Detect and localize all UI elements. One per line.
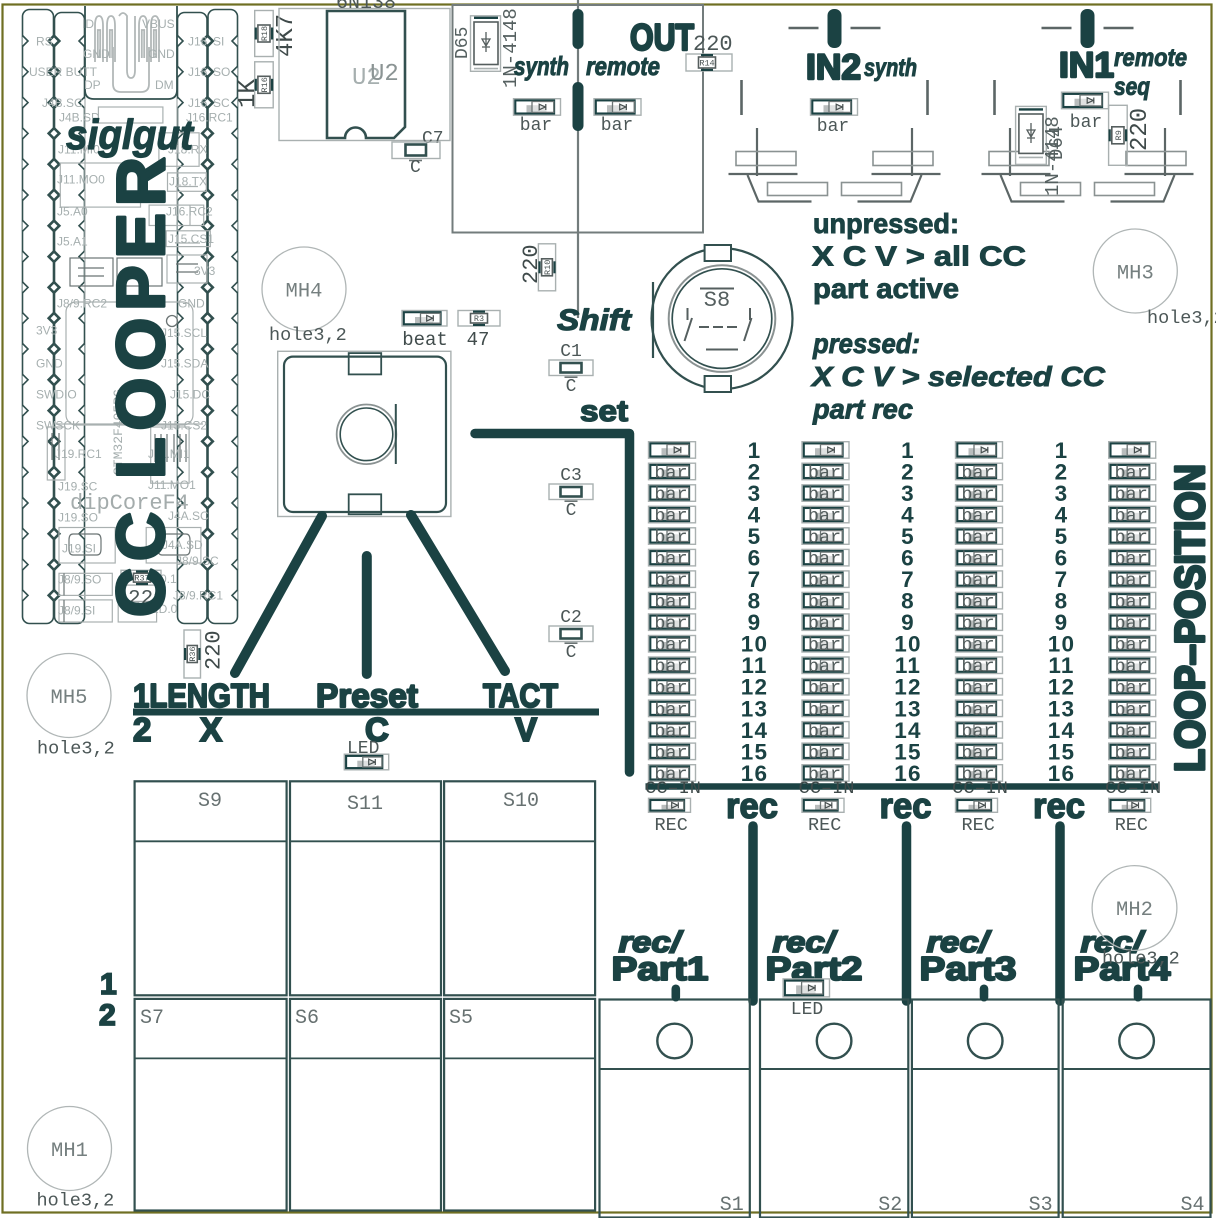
svg-text:unpressed:: unpressed: [813,208,959,239]
svg-text:X C V > all CC: X C V > all CC [812,241,1026,272]
svg-text:X C V > selected CC: X C V > selected CC [810,361,1106,392]
svg-text:2: 2 [99,999,116,1032]
svg-text:REC: REC [655,815,688,836]
svg-text:SC: SC [213,96,230,110]
svg-text:bar: bar [654,592,687,613]
svg-text:bar: bar [654,485,687,506]
svg-text:SWDIO: SWDIO [36,388,77,402]
svg-text:bar: bar [1115,592,1148,613]
svg-text:hole3,2: hole3,2 [37,1191,115,1212]
svg-text:bar: bar [1115,463,1148,484]
svg-text:C: C [566,377,577,397]
svg-text:J8/9.SI: J8/9.SI [58,604,95,618]
svg-text:R36: R36 [188,646,198,661]
svg-text:bar: bar [961,700,994,721]
svg-text:bar: bar [654,614,687,635]
svg-text:bar: bar [808,571,841,592]
svg-text:J19.SI: J19.SI [62,542,96,556]
svg-text:S10: S10 [503,790,539,813]
svg-text:IN1: IN1 [1059,46,1114,85]
svg-text:Preset: Preset [316,677,418,714]
svg-text:3V3: 3V3 [36,324,58,338]
svg-text:bar: bar [961,549,994,570]
svg-text:GND: GND [178,297,205,311]
svg-text:bar: bar [654,506,687,527]
svg-text:J16.RC1: J16.RC1 [186,111,233,125]
svg-text:MH3: MH3 [1117,263,1154,286]
svg-text:S7: S7 [140,1007,164,1030]
svg-text:J16: J16 [188,96,208,110]
svg-text:bar: bar [961,635,994,656]
svg-text:Part1: Part1 [612,950,709,987]
svg-text:R9: R9 [1114,130,1124,140]
svg-text:2: 2 [133,711,151,748]
svg-text:1LENGTH: 1LENGTH [133,677,270,714]
svg-text:J19.RC1: J19.RC1 [55,447,102,461]
svg-text:bar: bar [1115,485,1148,506]
svg-text:bar: bar [808,721,841,742]
svg-text:bar: bar [1115,743,1148,764]
svg-text:bar: bar [654,528,687,549]
svg-text:bar: bar [1115,614,1148,635]
svg-text:bar: bar [808,528,841,549]
svg-text:D65: D65 [453,27,473,59]
svg-text:bar: bar [961,678,994,699]
svg-text:bar: bar [601,116,633,136]
svg-text:bar: bar [961,485,994,506]
svg-text:bar: bar [817,117,849,137]
svg-text:CC–IN: CC–IN [1105,779,1161,799]
svg-text:beat: beat [402,329,448,351]
svg-text:R3: R3 [474,314,484,324]
svg-text:DP: DP [84,78,101,92]
svg-text:LOOP–POSITION: LOOP–POSITION [1166,464,1213,772]
svg-text:3V3: 3V3 [194,264,216,278]
svg-text:TACT: TACT [483,677,558,714]
svg-text:bar: bar [808,635,841,656]
svg-text:bar: bar [654,700,687,721]
svg-text:R14: R14 [699,59,714,69]
svg-text:S9: S9 [198,790,222,813]
svg-text:hole3,2: hole3,2 [1102,949,1180,970]
svg-text:CC–IN: CC–IN [799,779,855,799]
svg-text:seq: seq [1114,73,1150,101]
svg-text:rec: rec [726,785,778,826]
svg-text:siglgut: siglgut [66,111,195,158]
svg-text:hole3,2: hole3,2 [1147,308,1216,329]
svg-text:bar: bar [1115,571,1148,592]
svg-text:J4B.SC: J4B.SC [42,96,83,110]
svg-text:bar: bar [808,614,841,635]
svg-text:bar: bar [654,678,687,699]
svg-text:bar: bar [654,743,687,764]
svg-text:RS: RS [36,35,53,49]
svg-text:bar: bar [808,592,841,613]
svg-text:J8/9.SO: J8/9.SO [58,573,101,587]
svg-text:SO: SO [213,65,230,79]
svg-text:S8: S8 [704,288,730,313]
svg-text:S2: S2 [878,1194,902,1217]
svg-text:J11.MO0: J11.MO0 [57,173,105,187]
svg-text:S6: S6 [295,1007,319,1030]
svg-text:remote: remote [586,51,660,81]
svg-text:synth: synth [864,54,917,82]
svg-text:bar: bar [654,657,687,678]
svg-text:J8/9.RC1: J8/9.RC1 [173,589,223,603]
svg-text:rec: rec [880,785,932,826]
svg-text:CC–IN: CC–IN [645,779,701,799]
svg-text:R10: R10 [543,260,553,275]
svg-text:bar: bar [1115,700,1148,721]
svg-text:J8/9.SC: J8/9.SC [176,554,219,568]
svg-text:J5.A1: J5.A1 [57,235,88,249]
svg-text:bar: bar [1115,678,1148,699]
svg-text:47: 47 [467,329,490,351]
svg-text:IN2: IN2 [806,48,861,87]
svg-text:J8/9.RC2: J8/9.RC2 [57,297,107,311]
svg-text:GND: GND [36,357,63,371]
svg-text:bar: bar [1115,635,1148,656]
svg-text:REC: REC [962,815,995,836]
svg-text:bar: bar [1115,549,1148,570]
svg-text:SI: SI [213,35,224,49]
svg-text:bar: bar [808,506,841,527]
svg-text:set: set [580,395,628,428]
svg-text:bar: bar [1070,113,1102,133]
svg-text:bar: bar [520,116,552,136]
svg-text:DM: DM [155,78,174,92]
svg-text:1: 1 [100,968,117,1001]
svg-text:VBUS: VBUS [142,17,175,31]
svg-text:bar: bar [961,571,994,592]
svg-text:220: 220 [202,630,227,670]
svg-text:CC–IN: CC–IN [952,779,1008,799]
svg-text:Shift: Shift [557,304,633,337]
svg-text:CC LOOPER: CC LOOPER [103,157,179,617]
svg-text:REC: REC [808,815,841,836]
svg-text:bar: bar [961,528,994,549]
svg-text:part active: part active [813,273,959,304]
svg-text:ID: ID [82,17,94,31]
svg-text:bar: bar [961,657,994,678]
svg-text:synth: synth [514,51,569,81]
svg-text:MH1: MH1 [51,1140,88,1163]
svg-text:MH2: MH2 [1116,899,1153,922]
svg-text:bar: bar [808,743,841,764]
svg-text:bar: bar [654,463,687,484]
svg-text:bar: bar [1115,657,1148,678]
svg-text:J5.A0: J5.A0 [57,205,88,219]
svg-text:bar: bar [808,700,841,721]
svg-text:C3: C3 [560,466,582,486]
svg-text:S4: S4 [1181,1194,1205,1217]
svg-text:remote: remote [1114,44,1187,72]
svg-text:16: 16 [741,761,768,786]
svg-text:4K7: 4K7 [273,14,300,57]
svg-text:bar: bar [961,614,994,635]
svg-text:bar: bar [961,463,994,484]
svg-text:U2: U2 [370,61,399,88]
svg-text:bar: bar [808,549,841,570]
svg-text:GND: GND [83,47,110,61]
svg-text:bar: bar [961,592,994,613]
svg-text:rec: rec [1033,785,1085,826]
svg-text:hole3,2: hole3,2 [269,325,347,346]
svg-text:bar: bar [654,549,687,570]
svg-text:USER BUTT: USER BUTT [29,65,98,79]
svg-text:MH4: MH4 [286,281,323,304]
svg-text:R18: R18 [260,26,270,41]
svg-text:bar: bar [1115,721,1148,742]
svg-text:bar: bar [808,657,841,678]
svg-text:bar: bar [654,721,687,742]
svg-text:16: 16 [1048,761,1075,786]
svg-text:S5: S5 [449,1007,473,1030]
svg-text:C1: C1 [560,342,582,362]
svg-text:hole3,2: hole3,2 [37,739,115,760]
svg-text:Part3: Part3 [920,950,1017,987]
svg-text:bar: bar [961,743,994,764]
svg-text:C: C [566,501,577,521]
svg-text:J16: J16 [188,35,208,49]
svg-text:bar: bar [1115,528,1148,549]
svg-text:S1: S1 [720,1194,744,1217]
svg-text:pressed:: pressed: [812,328,920,359]
svg-text:REC: REC [1115,815,1148,836]
svg-text:S11: S11 [347,793,383,816]
svg-text:1K: 1K [235,79,262,108]
svg-text:LED: LED [791,1000,823,1020]
svg-text:C: C [410,158,421,178]
svg-text:SWSCK: SWSCK [36,419,80,433]
svg-text:MH5: MH5 [51,687,88,710]
svg-text:220: 220 [693,32,733,57]
svg-text:bar: bar [654,571,687,592]
svg-text:bar: bar [808,678,841,699]
svg-text:bar: bar [808,463,841,484]
svg-text:GND: GND [148,47,175,61]
svg-text:V: V [515,711,537,748]
svg-text:220: 220 [1127,108,1154,151]
svg-text:16: 16 [894,761,921,786]
svg-text:6N138: 6N138 [336,0,396,15]
svg-text:S3: S3 [1029,1194,1053,1217]
svg-text:1N-4148: 1N-4148 [1042,116,1064,196]
svg-text:C2: C2 [560,608,582,628]
svg-text:bar: bar [1115,506,1148,527]
svg-text:bar: bar [808,485,841,506]
svg-text:X: X [200,711,222,748]
svg-text:bar: bar [961,721,994,742]
svg-text:C: C [566,643,577,663]
svg-text:part rec: part rec [812,394,913,425]
svg-text:bar: bar [961,506,994,527]
svg-text:bar: bar [654,635,687,656]
svg-text:J16: J16 [188,65,208,79]
